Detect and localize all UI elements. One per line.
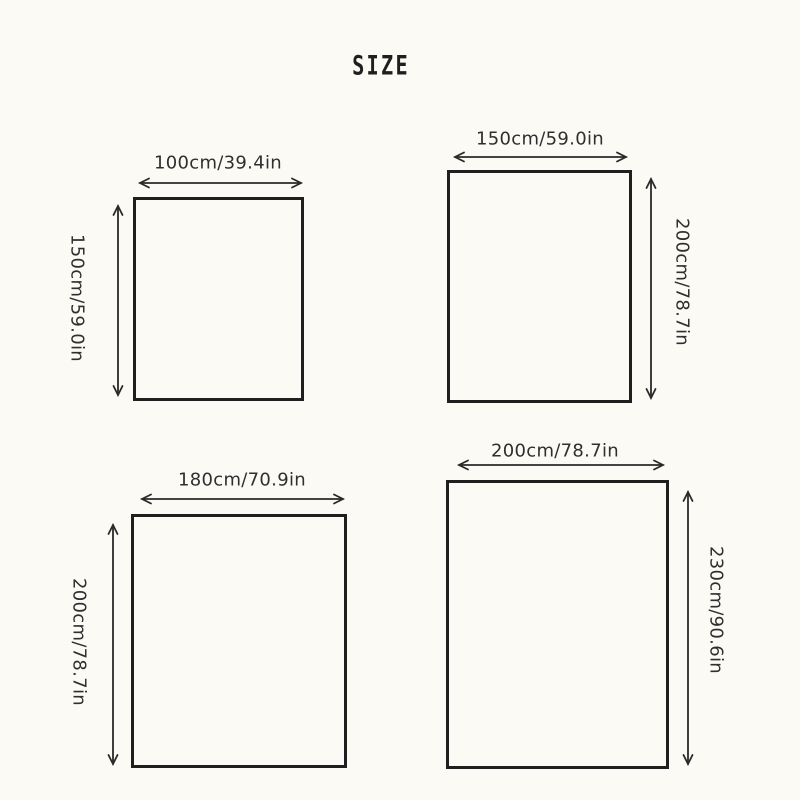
width-dimension-label: 200cm/78.7in xyxy=(491,441,619,462)
vertical-dimension-arrow-icon xyxy=(644,176,658,401)
horizontal-dimension-arrow-icon xyxy=(139,492,346,506)
height-dimension-label: 200cm/78.7in xyxy=(69,578,90,706)
horizontal-dimension-arrow-icon xyxy=(137,176,304,190)
width-dimension-label: 100cm/39.4in xyxy=(154,153,282,174)
vertical-dimension-arrow-icon xyxy=(106,522,120,767)
size-rectangle xyxy=(131,514,347,768)
size-rectangle xyxy=(446,480,669,769)
height-dimension-label: 200cm/78.7in xyxy=(672,218,693,346)
horizontal-dimension-arrow-icon xyxy=(452,150,629,164)
width-dimension-label: 150cm/59.0in xyxy=(476,129,604,150)
size-rectangle xyxy=(447,170,632,403)
page-title: SIZE xyxy=(352,51,410,82)
size-rectangle xyxy=(133,197,304,401)
width-dimension-label: 180cm/70.9in xyxy=(178,470,306,491)
height-dimension-label: 230cm/90.6in xyxy=(706,546,727,674)
vertical-dimension-arrow-icon xyxy=(681,489,695,767)
height-dimension-label: 150cm/59.0in xyxy=(67,234,88,362)
vertical-dimension-arrow-icon xyxy=(111,203,125,398)
size-diagram: SIZE 100cm/39.4in 150cm/59.0in 150cm/59.… xyxy=(0,0,800,800)
